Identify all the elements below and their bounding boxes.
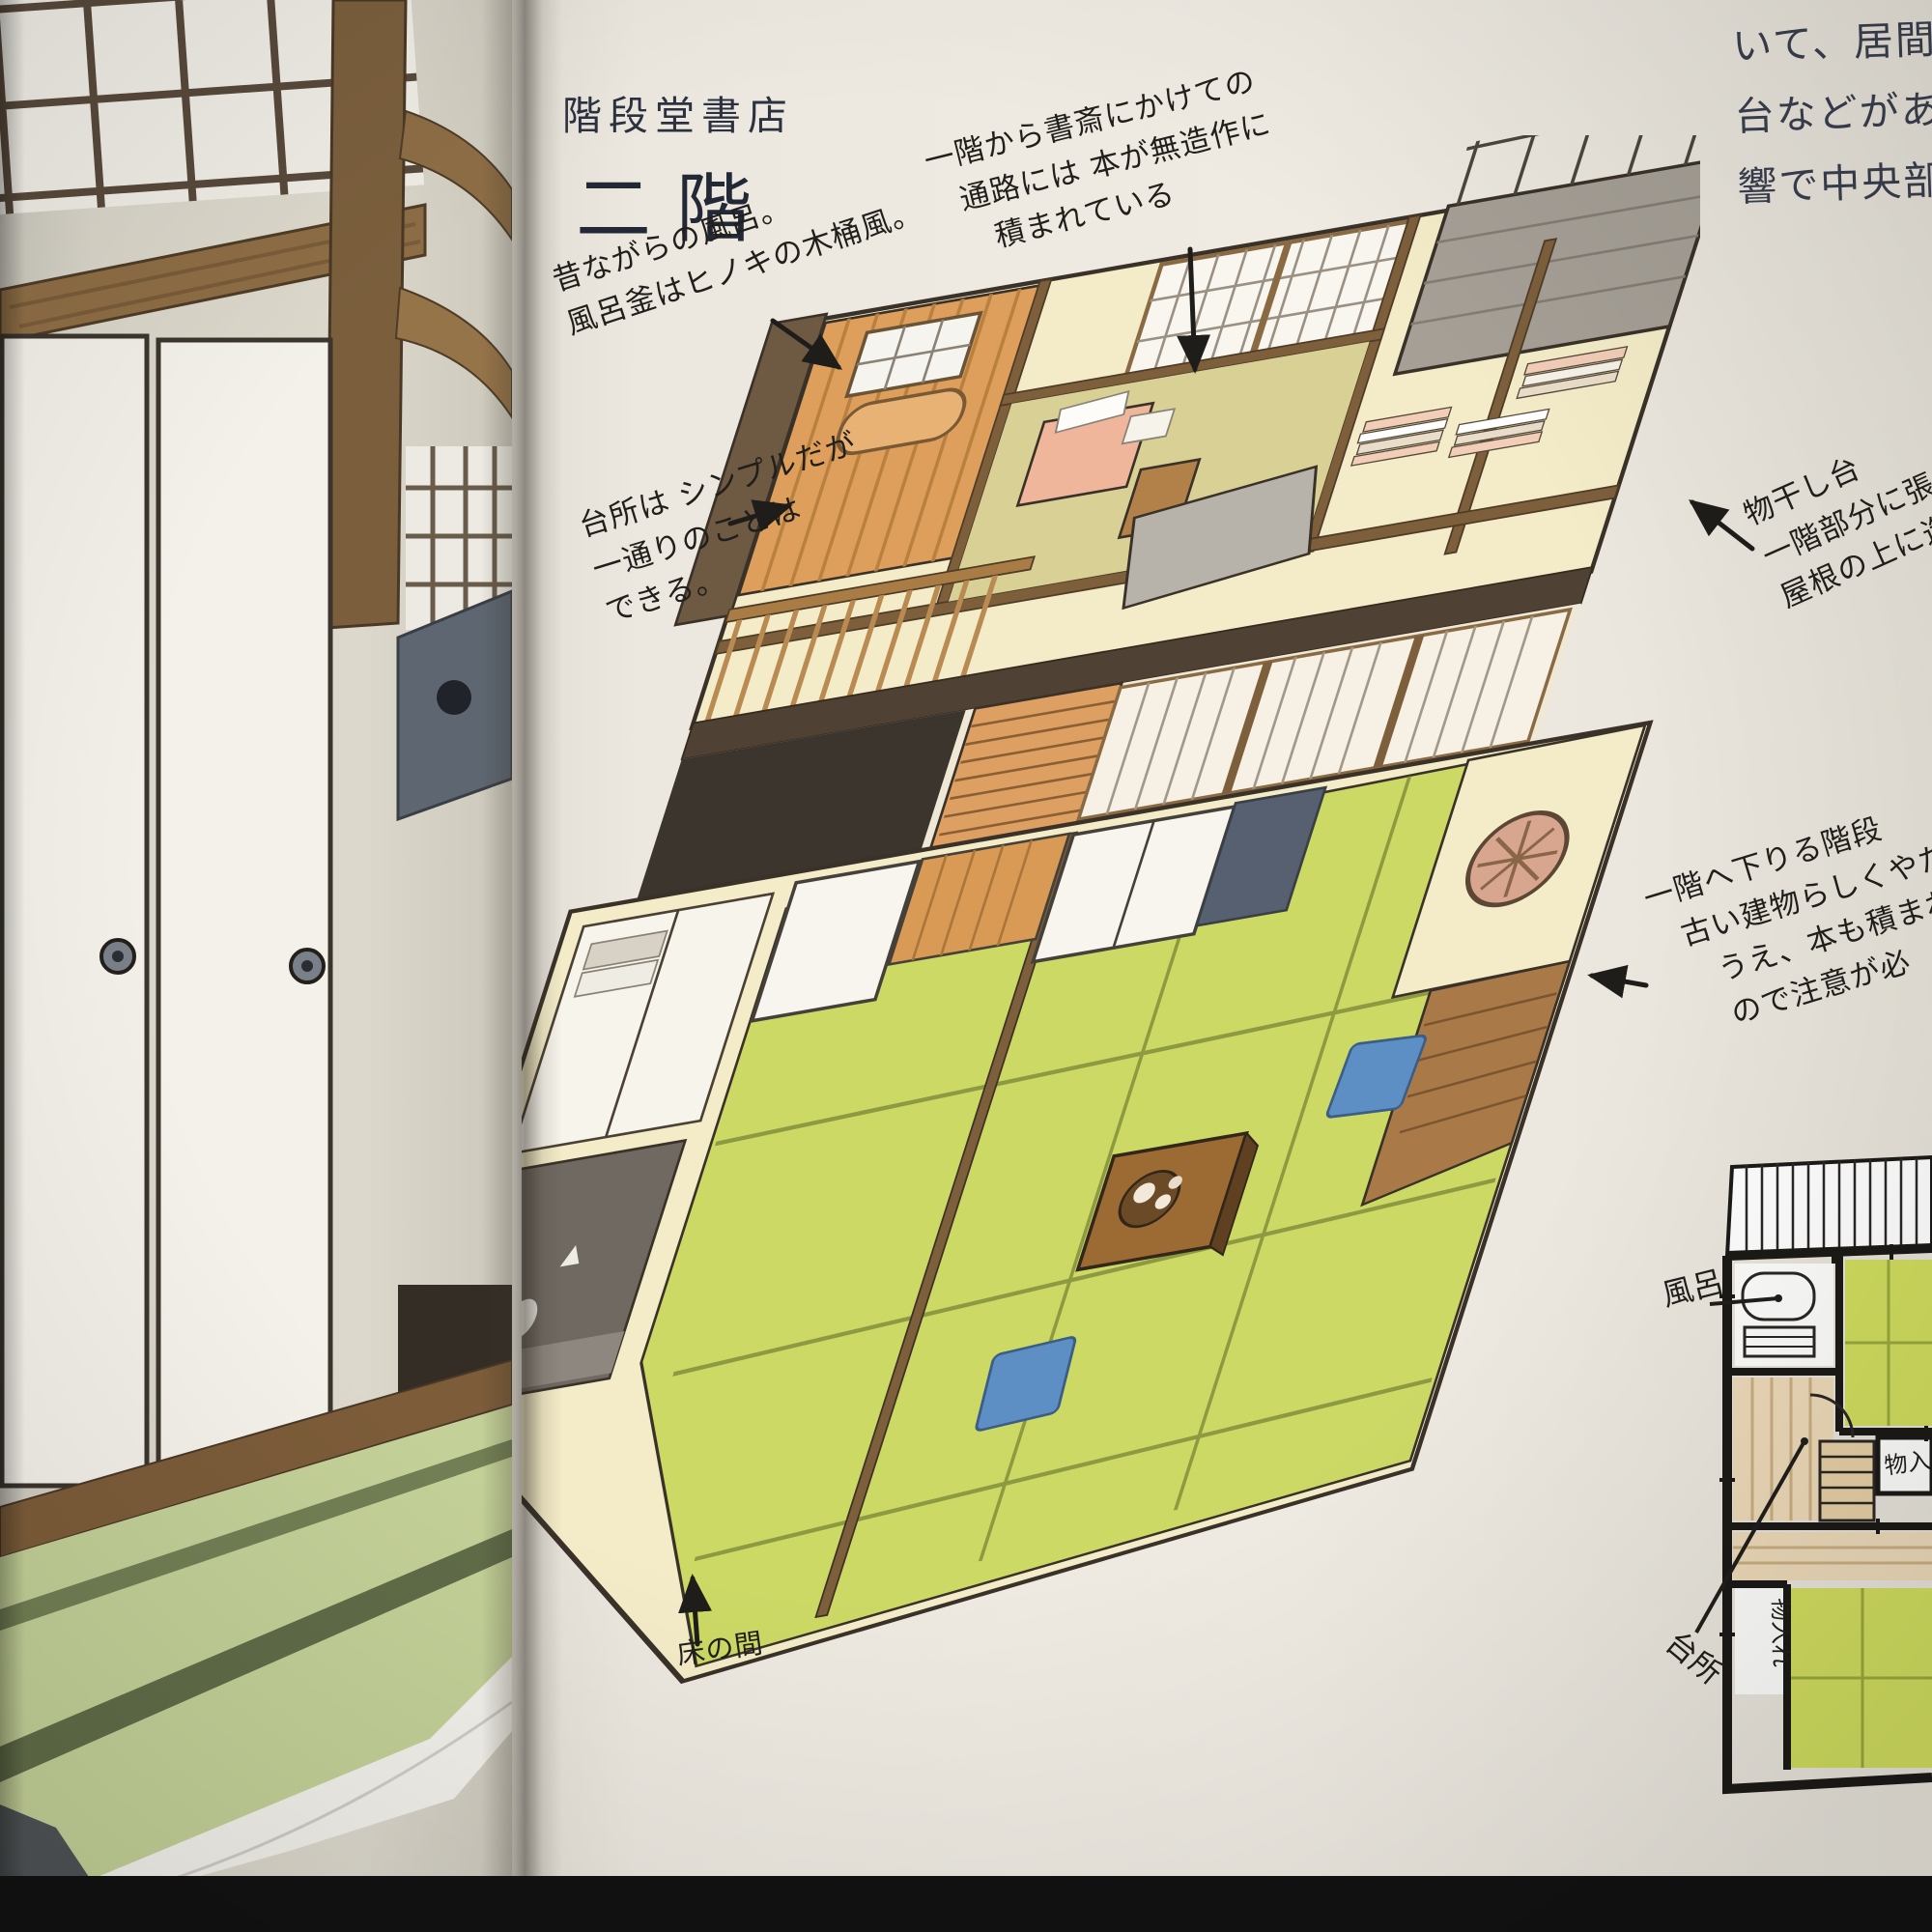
floor-plan-sketch: 物入 物入れ 風呂 台所 (1660, 1151, 1932, 1932)
plan-label-kitchen: 台所 (1660, 1624, 1729, 1691)
body-column-text: いて、居間、 台などがある 響で中央部分 (1731, 2, 1932, 223)
plan-closet-right: 物入 (1878, 1437, 1932, 1493)
wood-post (327, 0, 406, 628)
plan-label-bath: 風呂 (1660, 1263, 1727, 1313)
plan-label-closet-lower: 物入れ (1768, 1598, 1795, 1667)
porthole (437, 680, 471, 715)
photo-background-strip (0, 1876, 1932, 1932)
sliding-doors (2, 336, 330, 1492)
left-page-artwork (0, 0, 512, 1932)
plan-hall (1733, 1532, 1932, 1580)
column-line: 響で中央部分 (1736, 142, 1932, 222)
isometric-cutaway-illustration (522, 135, 1700, 1797)
plan-stairs (1820, 1441, 1874, 1520)
book-photo: 物入 物入れ 風呂 台所 階段堂書店 二階 いて、居間、 台などがある 響で中央… (0, 0, 1932, 1932)
plan-balcony (1727, 1157, 1932, 1256)
left-page-illustration (0, 0, 512, 1932)
plan-bath (1735, 1264, 1833, 1366)
shop-name: 階段堂書店 (562, 83, 794, 141)
column-line: 台などがある (1734, 71, 1932, 152)
column-line: いて、居間、 (1731, 2, 1932, 82)
